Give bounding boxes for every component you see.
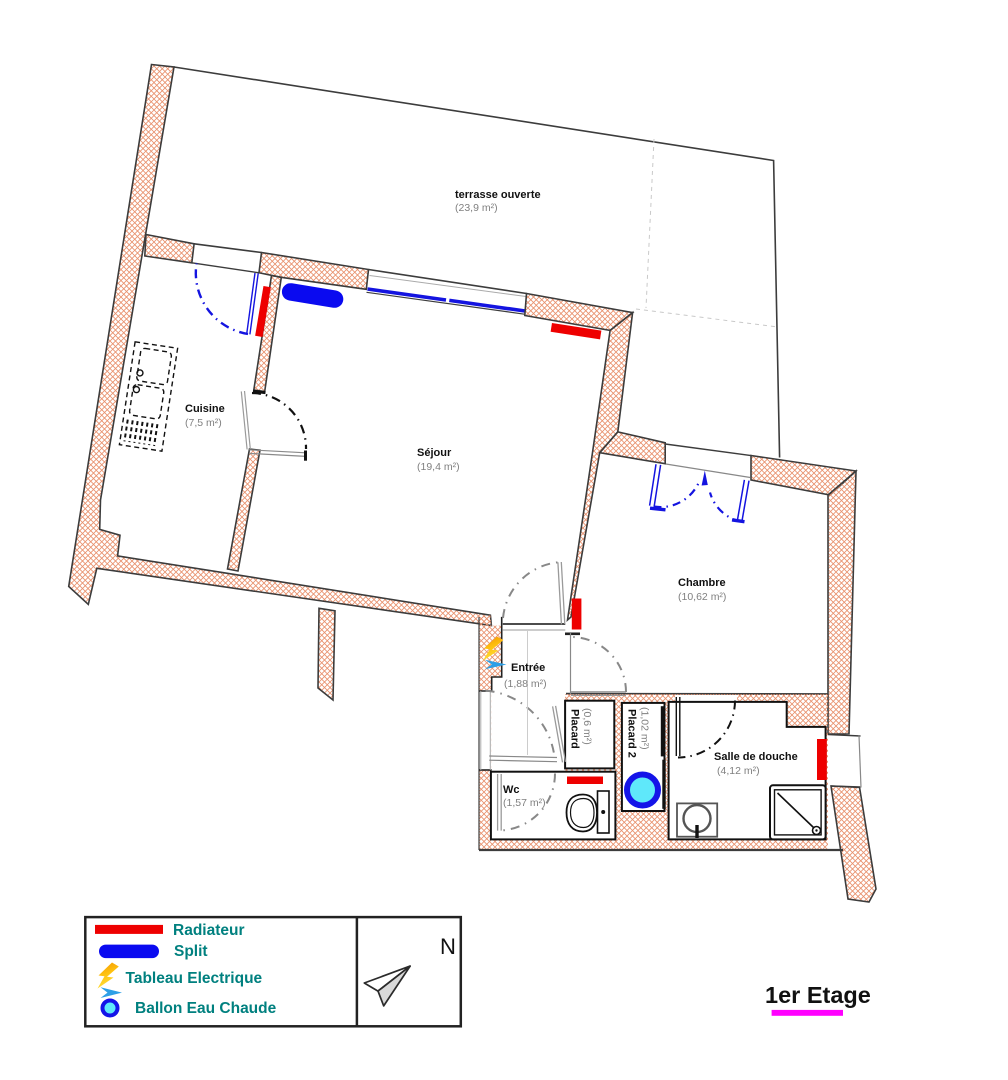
svg-text:Entrée: Entrée bbox=[511, 662, 545, 674]
svg-text:Radiateur: Radiateur bbox=[173, 922, 245, 939]
svg-text:Placard 2: Placard 2 bbox=[626, 709, 638, 758]
svg-text:(0,6 m²): (0,6 m²) bbox=[581, 708, 593, 745]
svg-text:(19,4 m²): (19,4 m²) bbox=[417, 461, 460, 473]
svg-text:Chambre: Chambre bbox=[678, 577, 726, 589]
svg-text:Salle de douche: Salle de douche bbox=[714, 751, 798, 763]
svg-text:terrasse ouverte: terrasse ouverte bbox=[455, 189, 541, 201]
svg-text:Wc: Wc bbox=[503, 784, 520, 796]
svg-text:(7,5 m²): (7,5 m²) bbox=[185, 417, 222, 429]
svg-text:(4,12 m²): (4,12 m²) bbox=[717, 765, 760, 777]
svg-text:Séjour: Séjour bbox=[417, 447, 452, 459]
svg-text:Placard: Placard bbox=[569, 709, 581, 749]
svg-text:(10,62 m²): (10,62 m²) bbox=[678, 591, 726, 603]
svg-text:(1,02 m²): (1,02 m²) bbox=[639, 707, 651, 750]
svg-text:(1,57 m²): (1,57 m²) bbox=[503, 797, 546, 809]
svg-text:Split: Split bbox=[174, 943, 208, 960]
svg-text:(23,9 m²): (23,9 m²) bbox=[455, 202, 498, 214]
svg-text:Tableau Electrique: Tableau Electrique bbox=[126, 970, 263, 987]
svg-text:(1,88 m²): (1,88 m²) bbox=[504, 678, 547, 690]
svg-text:1er Etage: 1er Etage bbox=[765, 982, 871, 1008]
svg-text:Ballon Eau Chaude: Ballon Eau Chaude bbox=[135, 1000, 277, 1017]
svg-text:N: N bbox=[440, 934, 456, 959]
svg-text:Cuisine: Cuisine bbox=[185, 403, 225, 415]
